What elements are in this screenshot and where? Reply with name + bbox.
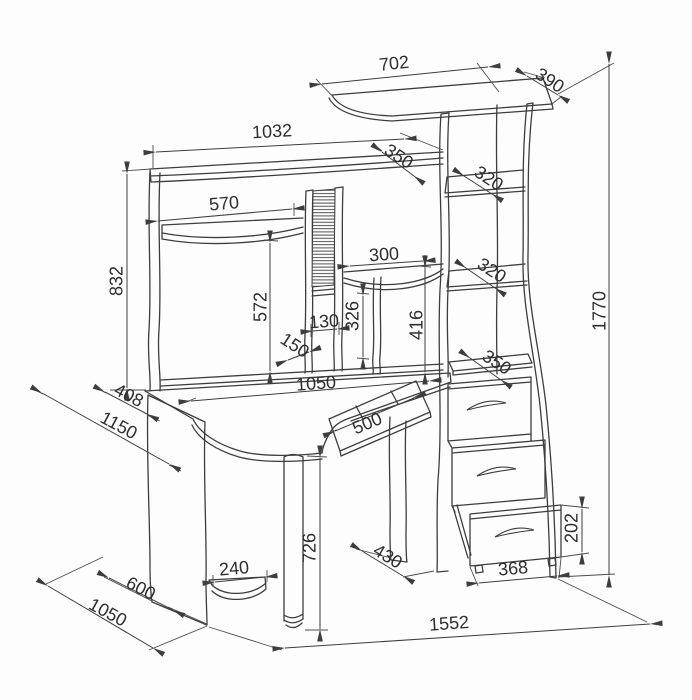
dim-label-572: 572 xyxy=(250,292,270,322)
dim-label-1552: 1552 xyxy=(428,612,469,635)
dim-label-1770: 1770 xyxy=(589,291,609,331)
dim-label-130: 130 xyxy=(308,310,339,332)
technical-drawing-page: 702 390 1032 350 570 832 300 320 320 350… xyxy=(0,0,692,700)
background xyxy=(0,0,692,700)
corner-desk-drawing: 702 390 1032 350 570 832 300 320 320 350… xyxy=(0,0,692,700)
dim-label-416: 416 xyxy=(406,310,426,340)
dim-label-240: 240 xyxy=(218,557,250,580)
dim-label-1032: 1032 xyxy=(251,120,292,142)
dim-label-1050-desk: 1050 xyxy=(295,372,336,395)
dim-label-832: 832 xyxy=(106,266,126,296)
dim-label-368: 368 xyxy=(497,557,529,580)
dim-label-702: 702 xyxy=(378,52,410,75)
dim-label-570: 570 xyxy=(208,192,240,215)
dim-label-726: 726 xyxy=(299,533,319,563)
dim-label-202: 202 xyxy=(561,513,581,543)
dim-label-300: 300 xyxy=(368,243,399,265)
cd-rack-hatch xyxy=(312,189,335,287)
dim-label-326: 326 xyxy=(342,301,362,331)
